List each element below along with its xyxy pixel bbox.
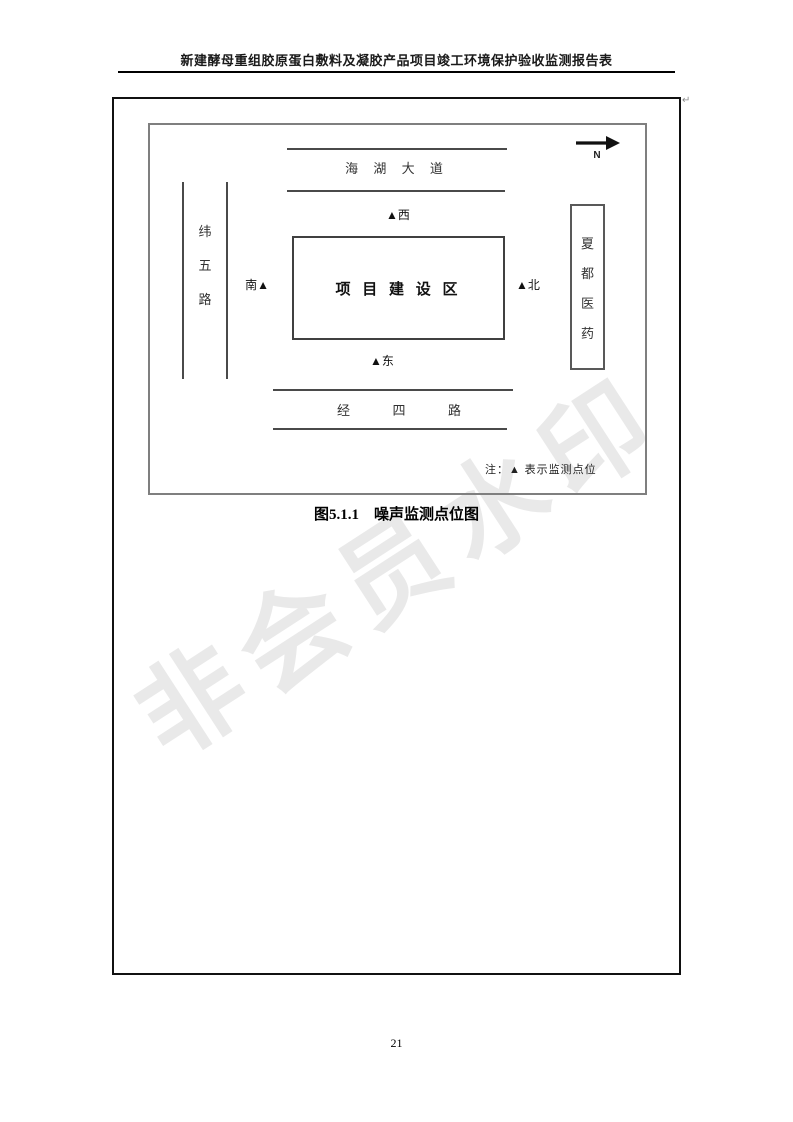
document-page: 非会员水印 新建酵母重组胶原蛋白敷料及凝胶产品项目竣工环境保护验收监测报告表 ↵… bbox=[0, 0, 793, 1122]
bottom-road-lower-line bbox=[273, 428, 507, 430]
top-road-upper-line bbox=[287, 148, 507, 150]
project-site-box: 项 目 建 设 区 bbox=[292, 236, 505, 340]
left-road-char: 路 bbox=[198, 289, 211, 308]
report-header-title: 新建酵母重组胶原蛋白敷料及凝胶产品项目竣工环境保护验收监测报告表 bbox=[0, 50, 793, 69]
page-content: 新建酵母重组胶原蛋白敷料及凝胶产品项目竣工环境保护验收监测报告表 ↵ N 海 湖… bbox=[0, 0, 793, 1122]
building-char: 药 bbox=[581, 323, 594, 342]
building-char: 夏 bbox=[581, 233, 594, 252]
left-road-char: 五 bbox=[198, 255, 211, 274]
monitoring-point-east: ▲东 bbox=[370, 352, 394, 369]
project-site-label: 项 目 建 设 区 bbox=[335, 278, 461, 299]
xiadu-pharma-box: 夏 都 医 药 bbox=[570, 204, 605, 370]
north-label: N bbox=[572, 150, 622, 161]
left-road-label: 纬 五 路 bbox=[183, 221, 227, 308]
bottom-road-upper-line bbox=[273, 389, 513, 391]
monitoring-point-west: ▲西 bbox=[348, 206, 448, 223]
building-char: 医 bbox=[581, 293, 594, 312]
header-rule bbox=[118, 71, 675, 73]
top-road-lower-line bbox=[287, 190, 505, 192]
building-char: 都 bbox=[581, 263, 594, 282]
page-number: 21 bbox=[0, 1036, 793, 1051]
monitoring-point-north: ▲北 bbox=[516, 276, 540, 293]
figure-caption: 图5.1.1 噪声监测点位图 bbox=[0, 503, 793, 524]
top-road-label: 海 湖 大 道 bbox=[287, 158, 507, 177]
left-road-char: 纬 bbox=[198, 221, 211, 240]
legend-note: 注：▲ 表示监测点位 bbox=[485, 461, 597, 477]
bottom-road-label: 经 四 路 bbox=[285, 400, 525, 419]
monitoring-point-south: 南▲ bbox=[233, 276, 269, 293]
paragraph-mark: ↵ bbox=[682, 95, 690, 106]
